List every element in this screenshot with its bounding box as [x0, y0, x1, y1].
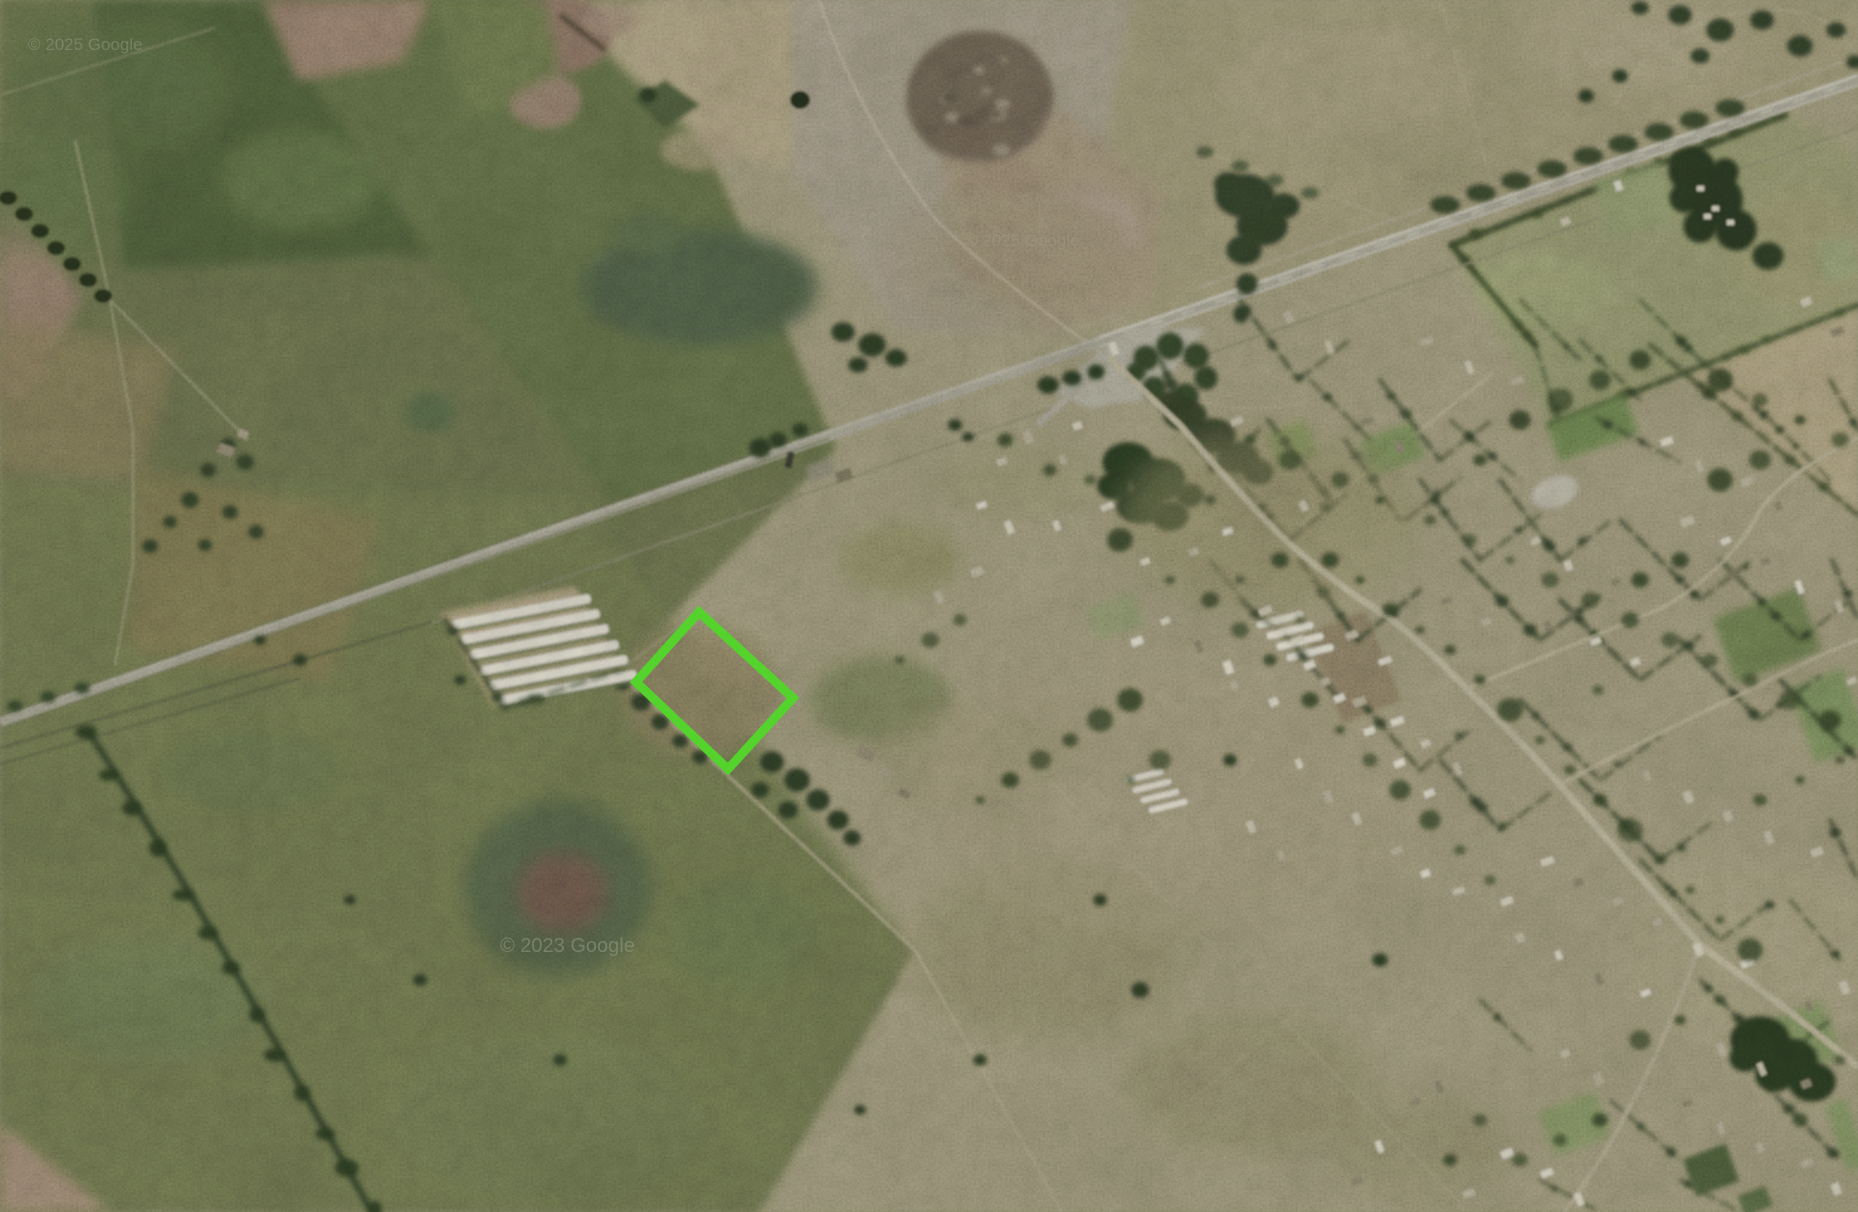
svg-text:© 2025 Google: © 2025 Google — [28, 35, 143, 54]
svg-text:© 2025 Google: © 2025 Google — [965, 231, 1080, 250]
svg-text:© 2023 Google: © 2023 Google — [500, 935, 635, 957]
